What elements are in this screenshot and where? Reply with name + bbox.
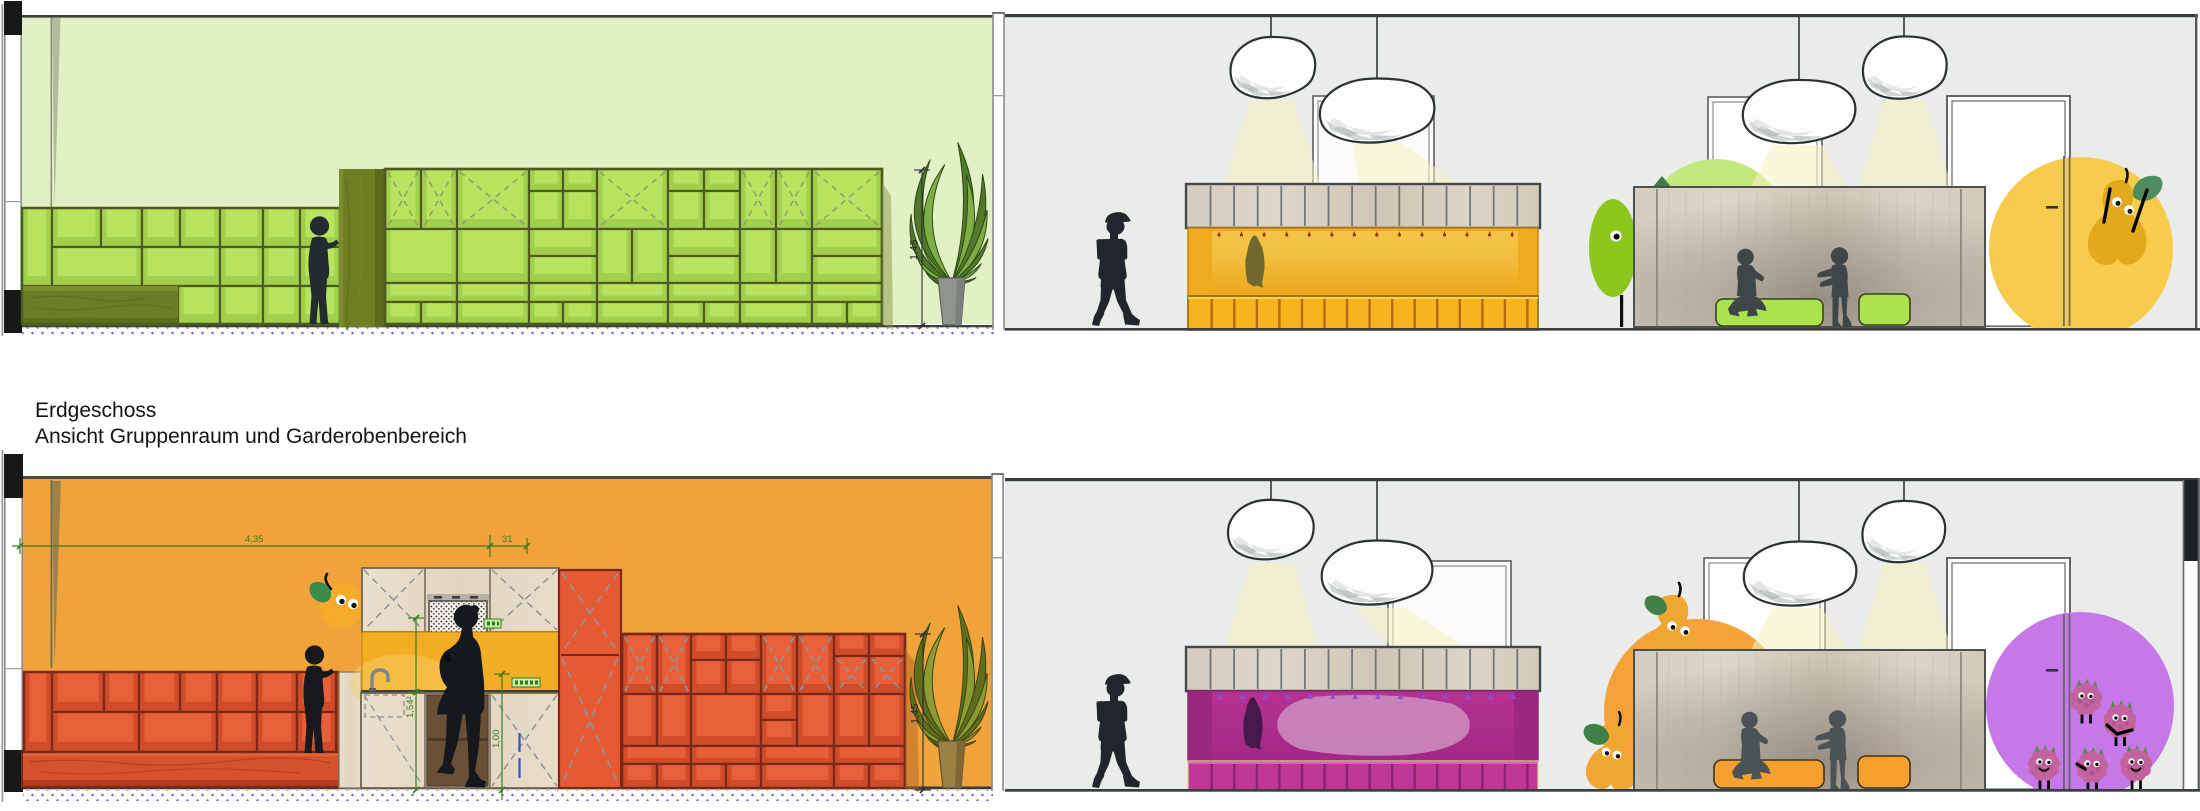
svg-text:1,45: 1,45 [908, 239, 920, 260]
svg-text:4,35: 4,35 [245, 534, 264, 545]
svg-text:1,00: 1,00 [491, 730, 502, 749]
svg-text:Ansicht Gruppenraum und Garder: Ansicht Gruppenraum und Garderobenbereic… [35, 425, 467, 448]
svg-text:1,45: 1,45 [909, 703, 921, 724]
svg-text:Erdgeschoss: Erdgeschoss [35, 399, 156, 422]
svg-text:1,54²: 1,54² [405, 696, 416, 718]
svg-text:31: 31 [502, 534, 513, 545]
